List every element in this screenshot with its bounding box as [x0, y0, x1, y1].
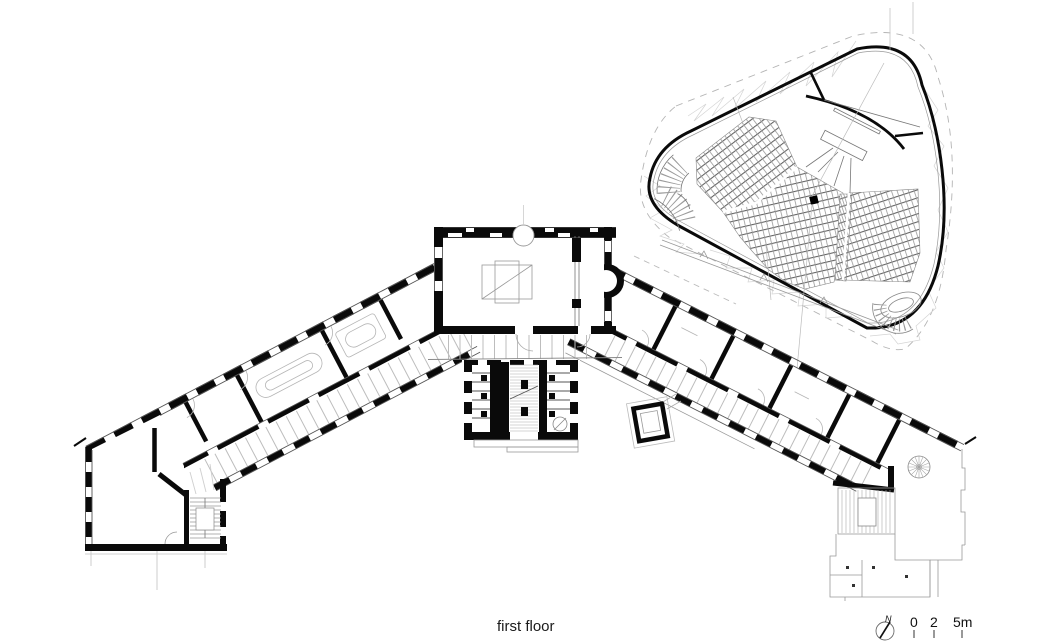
svg-text:5m: 5m	[953, 614, 972, 630]
svg-text:first floor: first floor	[497, 618, 555, 635]
svg-text:N: N	[885, 614, 892, 624]
svg-text:2: 2	[930, 614, 938, 630]
svg-text:0: 0	[910, 614, 918, 630]
